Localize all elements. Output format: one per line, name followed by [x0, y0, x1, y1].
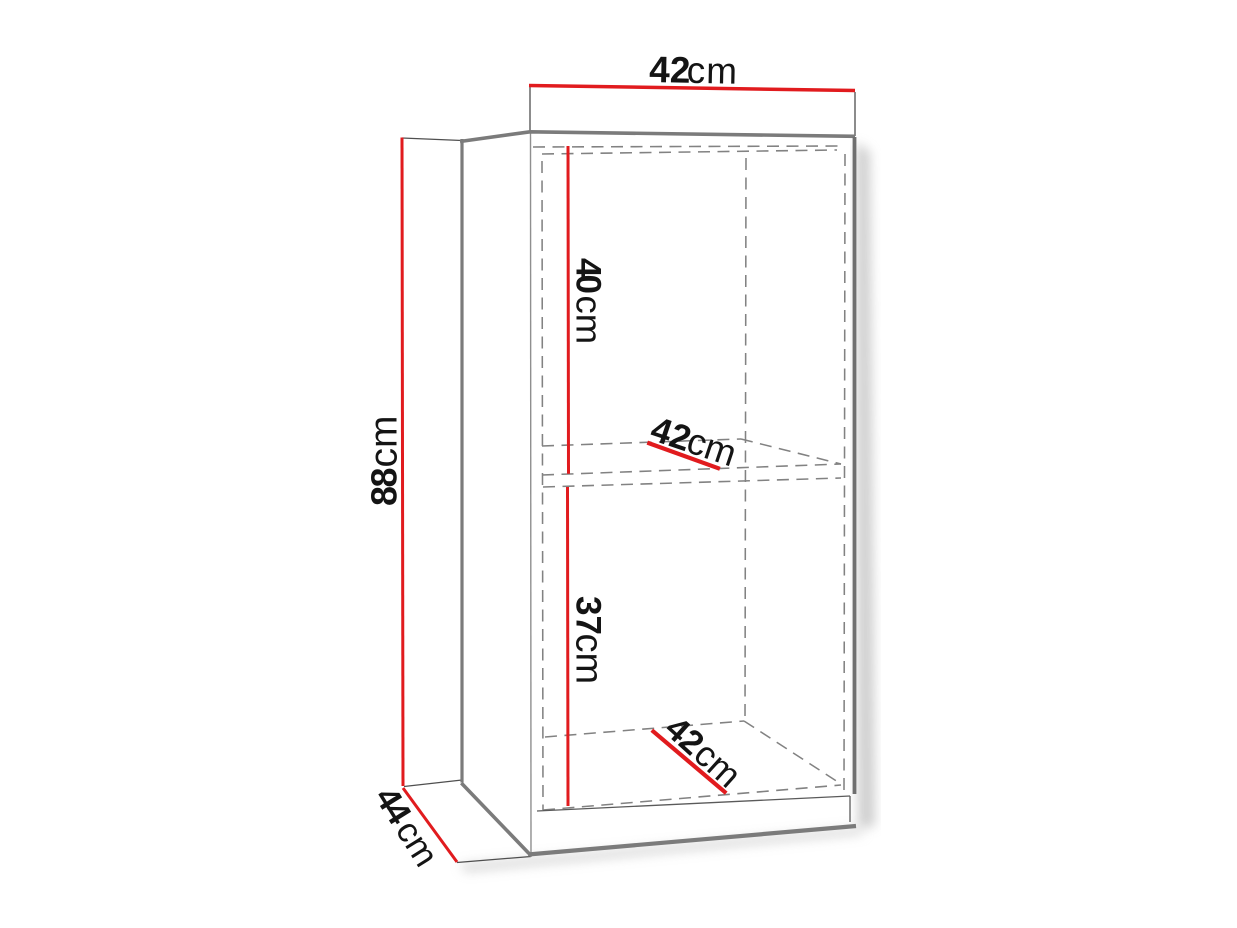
svg-text:42: 42	[649, 49, 691, 91]
svg-text:cm: cm	[686, 50, 738, 92]
svg-text:cm: cm	[568, 634, 610, 685]
svg-text:88: 88	[364, 468, 405, 506]
svg-text:37: 37	[569, 596, 608, 635]
svg-text:cm: cm	[388, 813, 446, 873]
svg-text:cm: cm	[569, 296, 610, 345]
svg-text:cm: cm	[363, 416, 406, 468]
svg-text:40: 40	[569, 258, 608, 293]
